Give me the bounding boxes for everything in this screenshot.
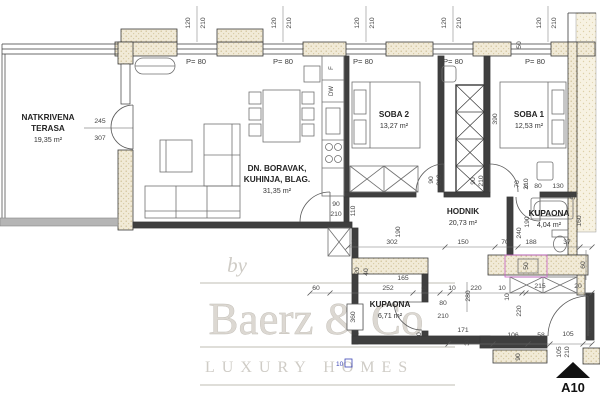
dimension-label: 90 — [428, 176, 435, 184]
window-parapet-label: P= 80 — [353, 57, 373, 66]
dimension-label: 245 — [94, 118, 106, 125]
dimension-label: 220 — [470, 285, 482, 292]
room-label-soba1: SOBA 1 — [514, 110, 545, 119]
wall-divider — [118, 150, 133, 230]
dimension-label: 70 — [501, 239, 509, 246]
dimension-label: 20 — [416, 332, 423, 340]
dimension-label: 390 — [492, 113, 499, 125]
kitchen-counter — [322, 56, 344, 196]
dimension-label: 10 — [498, 285, 506, 292]
terrace-door-arc — [111, 127, 133, 149]
room-area-boravak: 31,35 m² — [263, 186, 292, 195]
dimension-label: 30 — [464, 338, 471, 346]
wall-divider — [118, 42, 133, 64]
dimension-label: 90 — [470, 177, 477, 185]
dimension-label: 60 — [580, 261, 587, 269]
window-parapet-label: P= 80 — [443, 57, 463, 66]
wall-top — [386, 42, 433, 56]
wall-kitchen — [344, 56, 349, 228]
dining-table — [249, 90, 314, 142]
dimension-label: 20 — [354, 267, 361, 275]
wall-soba2-south — [344, 192, 416, 197]
cabinet — [304, 66, 320, 82]
dimension-label: 40 — [363, 268, 370, 276]
dimension-label: 90 — [332, 201, 340, 208]
dimension-label: 80 — [534, 183, 542, 190]
dimension-label: 190 — [524, 216, 531, 228]
dimension-label: 280 — [465, 290, 472, 302]
watermark-by-text: by — [227, 253, 248, 277]
dimension-label: 70 — [514, 180, 521, 188]
window-labels-group: P= 80P= 80P= 80P= 80P= 80 — [186, 57, 545, 66]
wall-soba1-west — [484, 56, 490, 192]
wall-top — [303, 42, 346, 56]
stove-burner — [335, 156, 342, 163]
dimension-label: 37 — [563, 239, 571, 246]
dimension-label: 30 — [570, 192, 577, 200]
wall-parapet — [121, 29, 177, 42]
dimension-label: 360 — [350, 311, 357, 323]
wardrobe-soba2 — [350, 166, 418, 192]
terrace-door-arc — [111, 105, 133, 127]
dimension-label: 210 — [330, 211, 342, 218]
utility-note-label: 10 — [336, 361, 344, 368]
room-area-kupaona: 4,04 m² — [537, 220, 562, 229]
window-parapet-label: P= 80 — [525, 57, 545, 66]
entrance-marker-group: A10 — [556, 362, 590, 395]
room-label-kupaona2: KUPAONA — [370, 300, 411, 309]
dimension-label: 10 — [504, 293, 511, 301]
wall-top — [473, 42, 511, 56]
terrace-parapet — [0, 218, 118, 226]
wall-parapet — [217, 29, 263, 42]
room-area-kupaona2: 6,71 m² — [378, 311, 403, 320]
entrance-door-arc — [548, 296, 588, 336]
room-label-boravak: KUHINJA, BLAG. — [244, 175, 310, 184]
wall-living-south — [133, 222, 352, 228]
dimension-label: 106 — [507, 332, 519, 339]
room-label-kupaona: KUPAONA — [529, 209, 570, 218]
top-dimension-label: 210 — [456, 17, 463, 29]
dimension-label: 210 — [437, 313, 449, 320]
window-parapet-label: P= 80 — [186, 57, 206, 66]
top-dimension-label: 120 — [271, 17, 278, 29]
dimension-label: 20 — [574, 283, 582, 290]
dimension-label: 210 — [436, 174, 443, 186]
dimension-label: 220 — [516, 305, 523, 317]
dishwasher-label: DW — [329, 86, 335, 96]
stove-burner — [326, 156, 333, 163]
sofa — [145, 124, 240, 218]
room-label-terasa: TERASA — [31, 124, 65, 133]
top-dimension-label: 210 — [551, 17, 558, 29]
dimension-label: 110 — [350, 205, 357, 216]
dimension-label: 70 — [421, 286, 428, 294]
apartment-marker-label: A10 — [561, 380, 585, 395]
divider-sidelight — [121, 64, 130, 104]
dimension-label: 58 — [537, 332, 545, 339]
dimension-label: 171 — [457, 327, 469, 334]
floor-plan-drawing: by Baerz & Co LUXURY HOMES — [0, 0, 600, 400]
room-label-hodnik: HODNIK — [447, 207, 479, 216]
wall-top — [217, 42, 263, 56]
top-dimension-label: 120 — [536, 17, 543, 29]
fridge-label: F — [329, 66, 335, 70]
window-parapet-label: P= 80 — [273, 57, 293, 66]
terrace-glazing — [2, 44, 118, 222]
room-area-terasa: 19,35 m² — [34, 135, 63, 144]
dimension-label: 188 — [525, 239, 537, 246]
wall-hall-north — [444, 192, 490, 197]
dimension-label: 60 — [312, 285, 320, 292]
oven — [326, 108, 340, 134]
dimension-label: 105 — [562, 331, 574, 338]
top-dimension-label: 120 — [185, 17, 192, 29]
dimension-label: 5 — [588, 328, 592, 335]
dimension-label: 302 — [386, 239, 398, 246]
dimension-label: 80 — [439, 300, 447, 307]
dimension-label: 210 — [564, 346, 571, 358]
dimension-label: 5 — [524, 183, 528, 190]
room-label-terasa: NATKRIVENA — [21, 113, 74, 122]
stove-burner — [335, 144, 342, 151]
top-dimension-label: 210 — [369, 17, 376, 29]
stove-burner — [326, 144, 333, 151]
floor-plan-page: by Baerz & Co LUXURY HOMES — [0, 0, 600, 400]
dimension-label: 215 — [534, 283, 546, 290]
dimension-label: 80 — [351, 239, 358, 247]
room-area-hodnik: 20,73 m² — [449, 218, 478, 227]
dimension-label: 252 — [382, 285, 394, 292]
top-dimension-label: 120 — [354, 17, 361, 29]
dimension-label: 190 — [395, 226, 402, 238]
dimension-label: 210 — [478, 175, 485, 187]
entry-sill — [583, 348, 600, 364]
living-door-arc — [300, 192, 330, 222]
nightstand — [537, 162, 553, 180]
wall-kupaona-west — [507, 197, 513, 255]
room-label-boravak: DN. BORAVAK, — [248, 164, 307, 173]
dimension-label: 50 — [523, 262, 530, 270]
dimension-label: 90 — [515, 353, 522, 361]
watermark-tagline-text: LUXURY HOMES — [205, 359, 414, 376]
dimension-label: 240 — [516, 227, 523, 239]
dimension-label: 160 — [576, 215, 583, 227]
dimension-label: 130 — [552, 183, 564, 190]
top-dimension-label: 210 — [200, 17, 207, 29]
wall-soba2-east — [438, 56, 444, 192]
dimension-label: 307 — [94, 135, 106, 142]
dimension-label: 165 — [397, 275, 409, 282]
wardrobe-column — [328, 228, 350, 256]
top-dimension-label: 210 — [286, 17, 293, 29]
room-label-soba2: SOBA 2 — [379, 110, 410, 119]
dimension-label: 50 — [516, 41, 523, 49]
dimension-label: 105 — [556, 346, 563, 358]
room-area-soba1: 12,53 m² — [515, 121, 544, 130]
dimension-label: 150 — [457, 239, 469, 246]
top-dimension-label: 120 — [441, 17, 448, 29]
room-area-soba2: 13,27 m² — [380, 121, 409, 130]
